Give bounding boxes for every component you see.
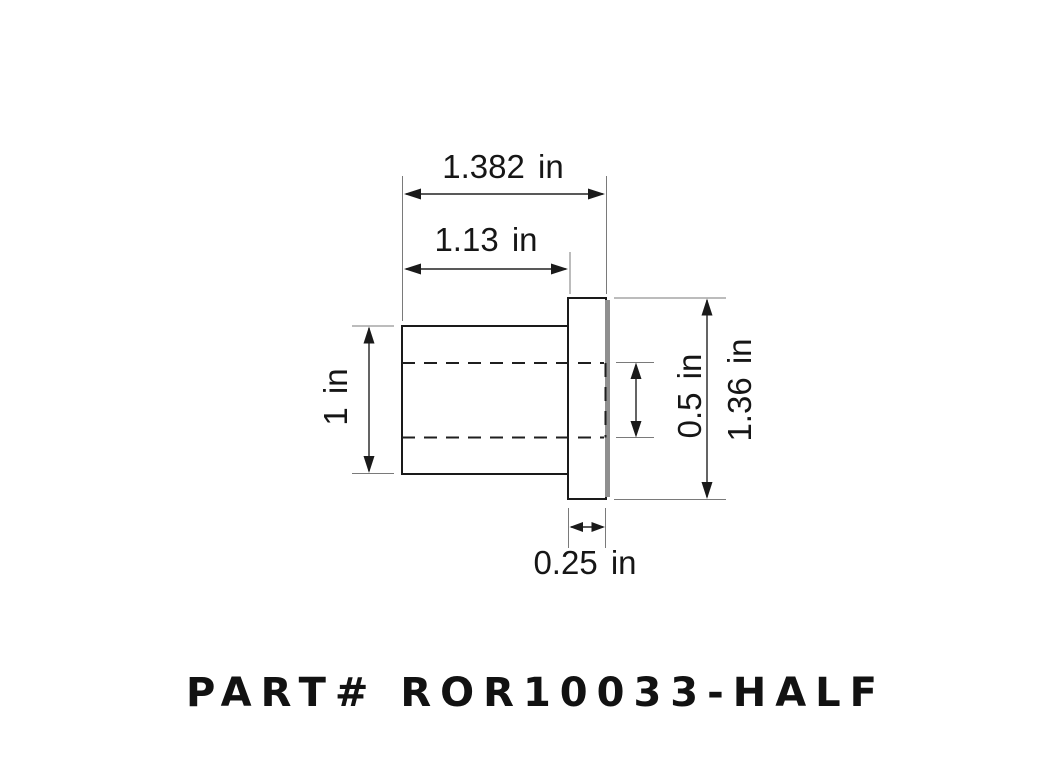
technical-drawing-page: 1.382 in 1.13 in 1 in 0.5 in 1.36 in 0.2… (0, 0, 1064, 768)
arrowhead-up-icon (702, 299, 713, 316)
arrowhead-up-icon (631, 363, 642, 380)
arrowhead-down-icon (702, 482, 713, 499)
arrowhead-left-icon (404, 264, 421, 275)
body-length-label: 1.13 in (434, 221, 537, 258)
arrowhead-right-icon (592, 522, 606, 532)
drawing-svg: 1.382 in 1.13 in 1 in 0.5 in 1.36 in 0.2… (0, 0, 1064, 768)
overall-length-label: 1.382 in (442, 148, 563, 185)
part-body (402, 326, 569, 474)
body-diameter-label: 1 in (317, 368, 354, 425)
arrowhead-right-icon (551, 264, 568, 275)
arrowhead-up-icon (364, 327, 375, 344)
arrowhead-left-icon (570, 522, 584, 532)
part-flange (568, 298, 606, 499)
part-geometry (402, 298, 610, 499)
arrowhead-down-icon (364, 456, 375, 473)
flange-thickness-label: 0.25 in (533, 544, 636, 581)
flange-diameter-label: 1.36 in (721, 338, 758, 441)
bore-diameter-label: 0.5 in (671, 354, 708, 439)
part-number-label: PART# ROR10033-HALF (186, 670, 886, 716)
arrowhead-down-icon (631, 421, 642, 438)
arrowhead-right-icon (588, 189, 605, 200)
arrowhead-left-icon (404, 189, 421, 200)
